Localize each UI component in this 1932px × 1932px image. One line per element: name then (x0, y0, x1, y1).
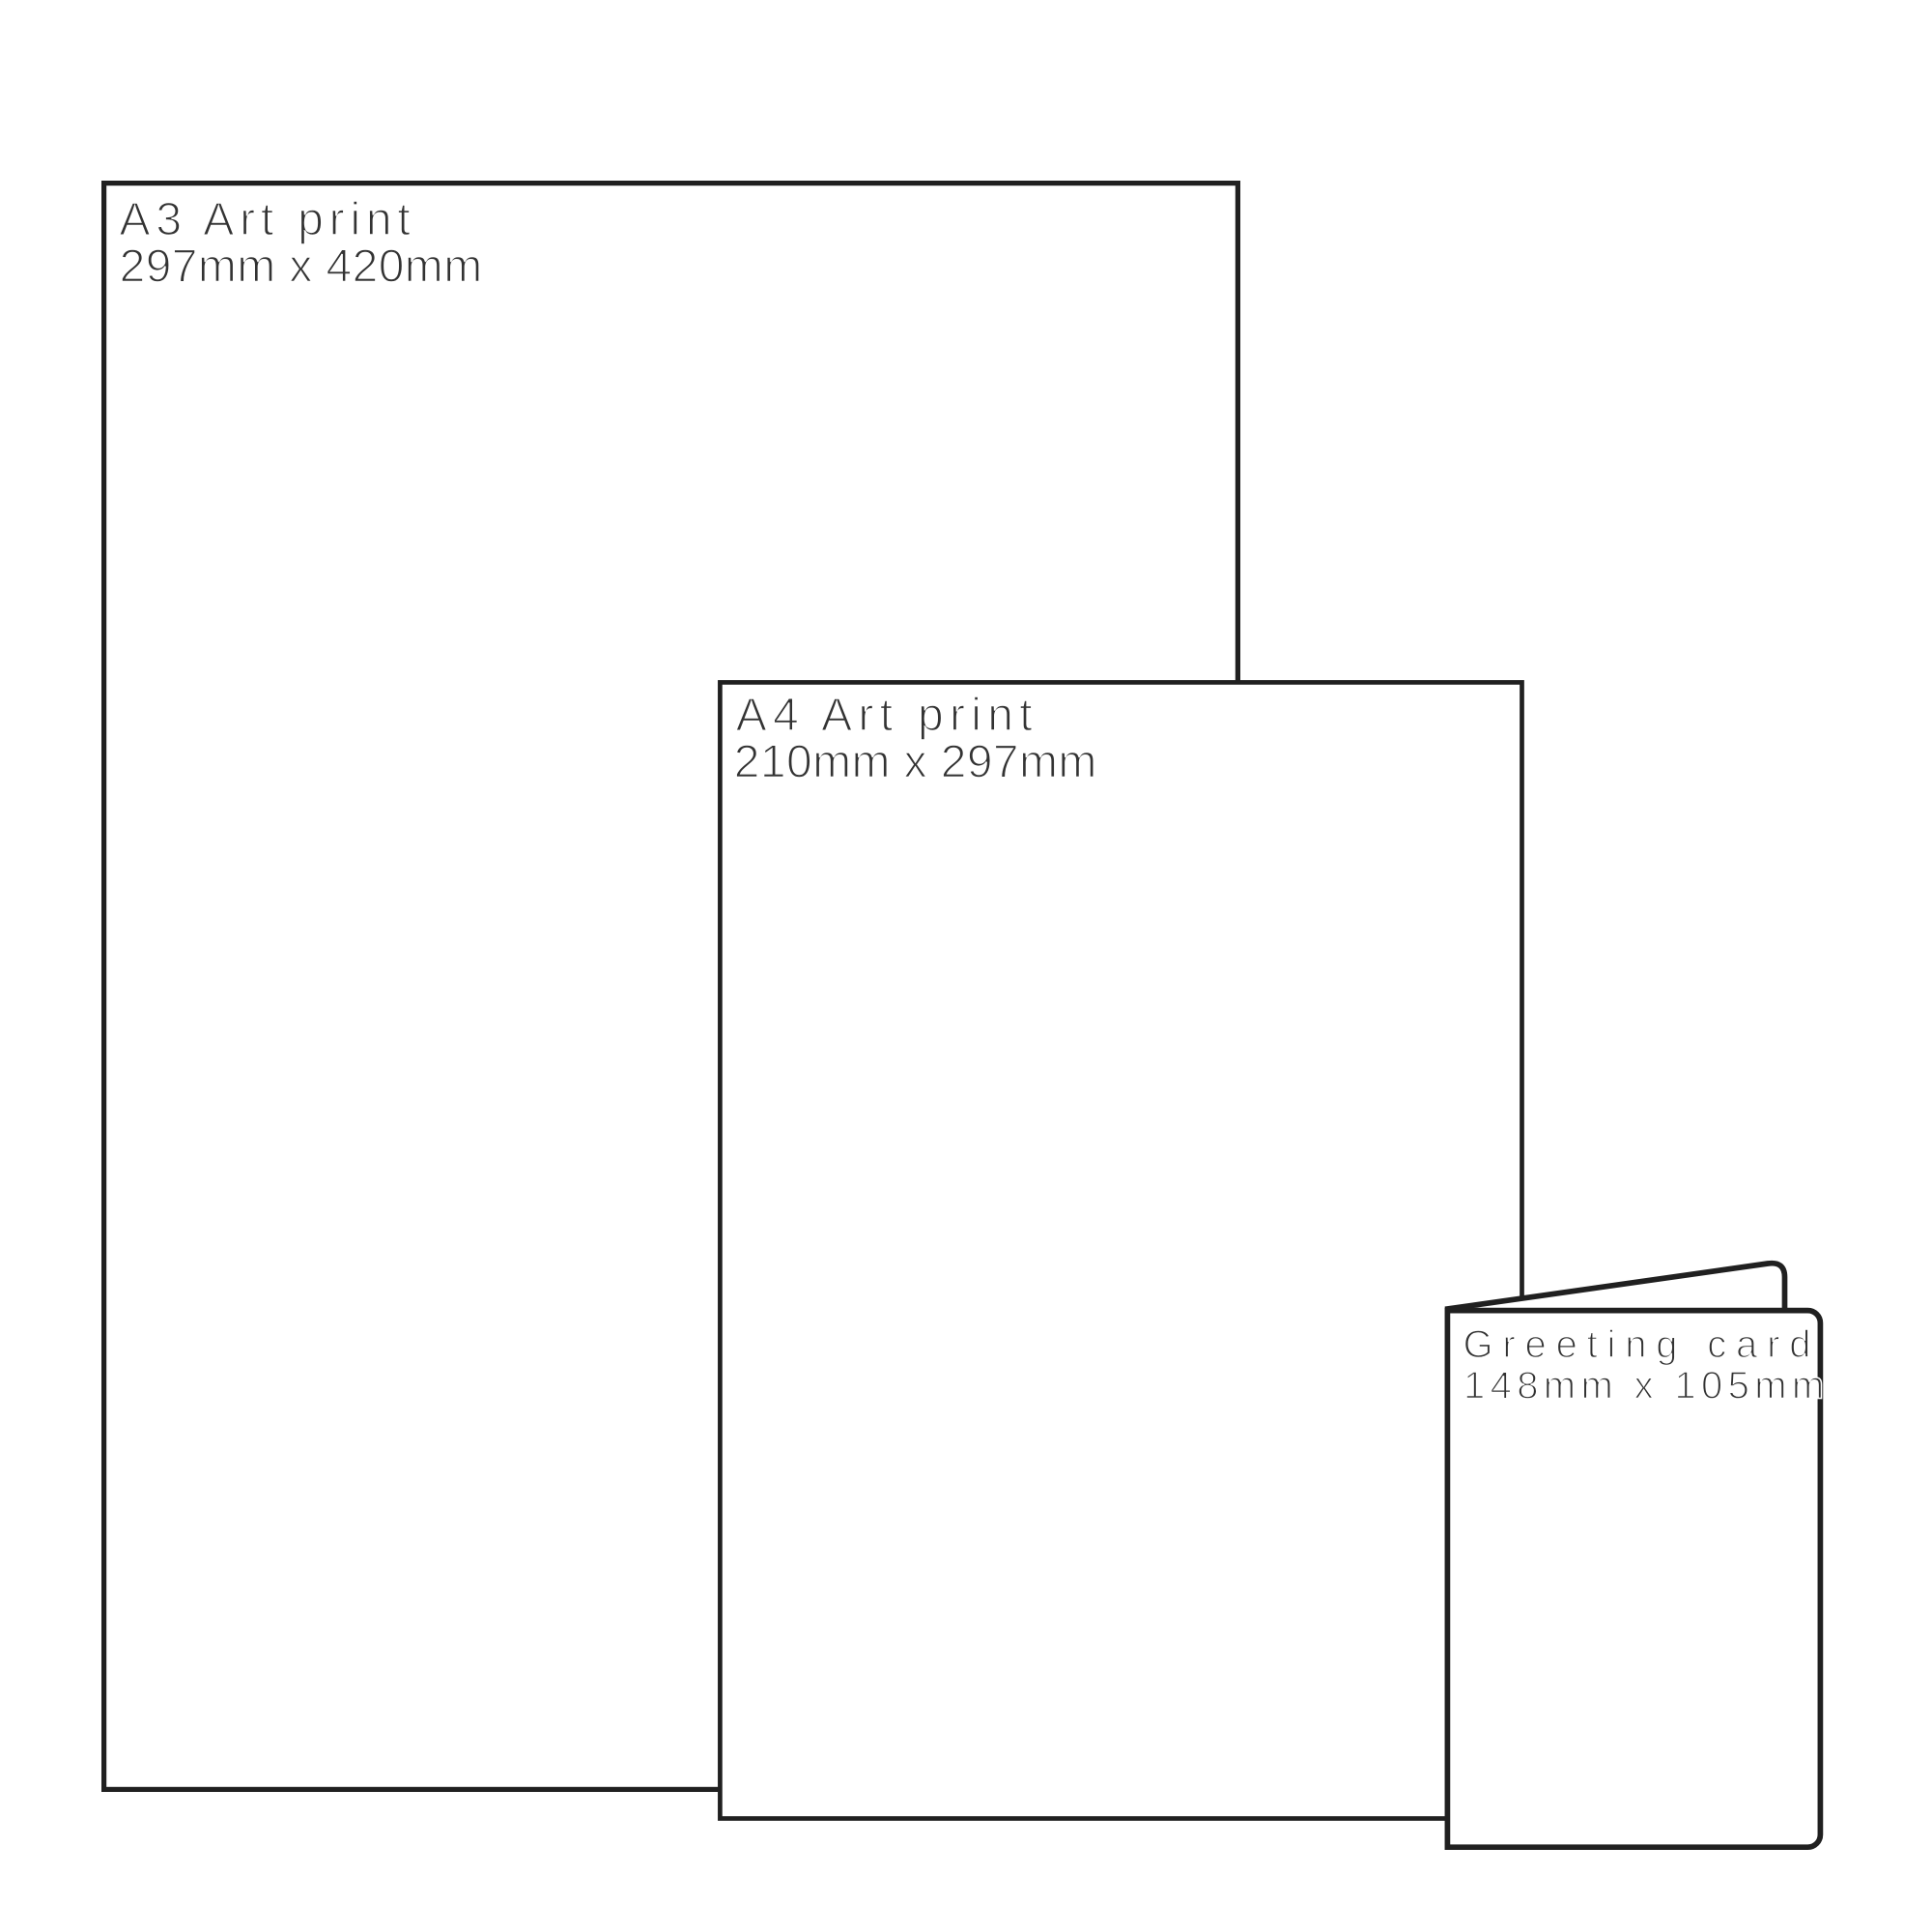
svg-text:148mm x 105mm: 148mm x 105mm (1463, 1364, 1830, 1406)
svg-text:210mm x 297mm: 210mm x 297mm (734, 737, 1097, 788)
svg-text:A3 Art print: A3 Art print (120, 194, 416, 245)
svg-text:A4 Art print: A4 Art print (736, 690, 1038, 741)
svg-text:297mm x 420mm: 297mm x 420mm (120, 241, 483, 292)
svg-text:Greeting card: Greeting card (1463, 1323, 1821, 1366)
